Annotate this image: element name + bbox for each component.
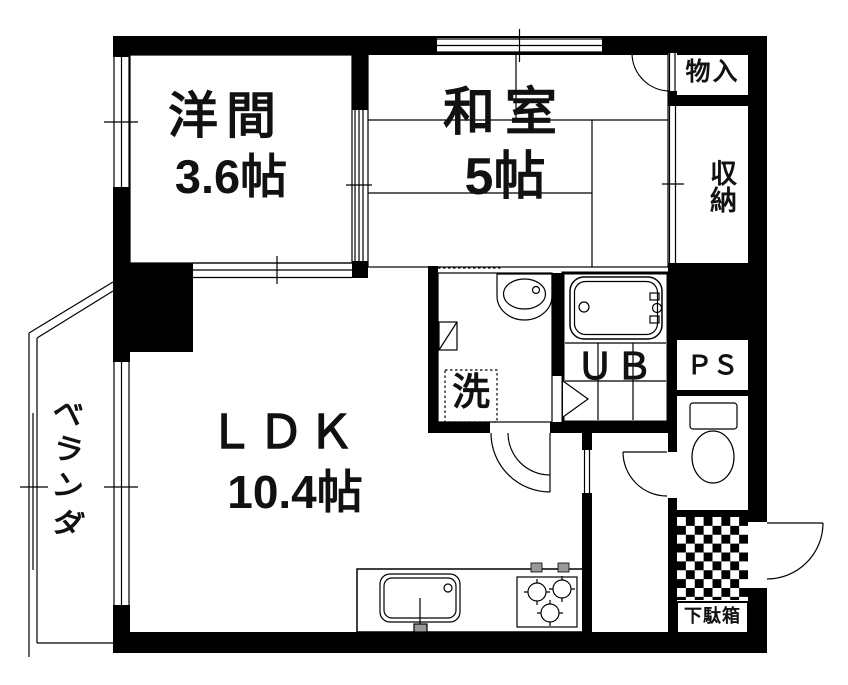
stove	[517, 563, 577, 627]
label-japanese-room-name: 和室	[415, 86, 595, 141]
label-veranda: ベ ラ ン ダ	[44, 398, 90, 546]
kitchen-sink	[380, 574, 460, 632]
veranda-char-4: ダ	[47, 506, 86, 550]
floorplan: 洋間 3.6帖 和室 5帖 ＬＤＫ 10.4帖 物入 収納 ＵＢ ＰＳ 洗 下駄…	[0, 0, 848, 685]
label-western-room-size: 3.6帖	[136, 152, 326, 201]
label-ldk-name: ＬＤＫ	[188, 408, 378, 456]
window-west-small	[104, 57, 138, 187]
label-pipe-space: ＰＳ	[677, 352, 748, 379]
label-unit-bath: ＵＢ	[563, 348, 668, 387]
label-closet: 収納	[690, 138, 735, 233]
label-japanese-room-size: 5帖	[415, 150, 595, 205]
vanity-sink	[497, 274, 552, 320]
veranda-char-1: ベ	[47, 395, 86, 439]
water-heater-symbol	[439, 322, 457, 350]
bathtub	[570, 277, 662, 339]
sliding-door-western-south	[193, 256, 352, 284]
entrance-door-arc	[767, 523, 823, 579]
label-ldk-size: 10.4帖	[190, 468, 400, 516]
window-west-large	[104, 362, 138, 605]
veranda-char-3: ン	[47, 469, 86, 513]
label-storage: 物入	[677, 59, 748, 85]
label-laundry: 洗	[445, 374, 497, 414]
veranda-char-2: ラ	[47, 432, 86, 476]
toilet-fixture	[690, 403, 737, 483]
label-shoe-cabinet: 下駄箱	[677, 607, 748, 626]
window-top	[437, 29, 602, 62]
toilet-door-arc	[623, 452, 667, 496]
label-western-room-name: 洋間	[146, 90, 306, 143]
washroom-door-arcs	[491, 433, 550, 492]
